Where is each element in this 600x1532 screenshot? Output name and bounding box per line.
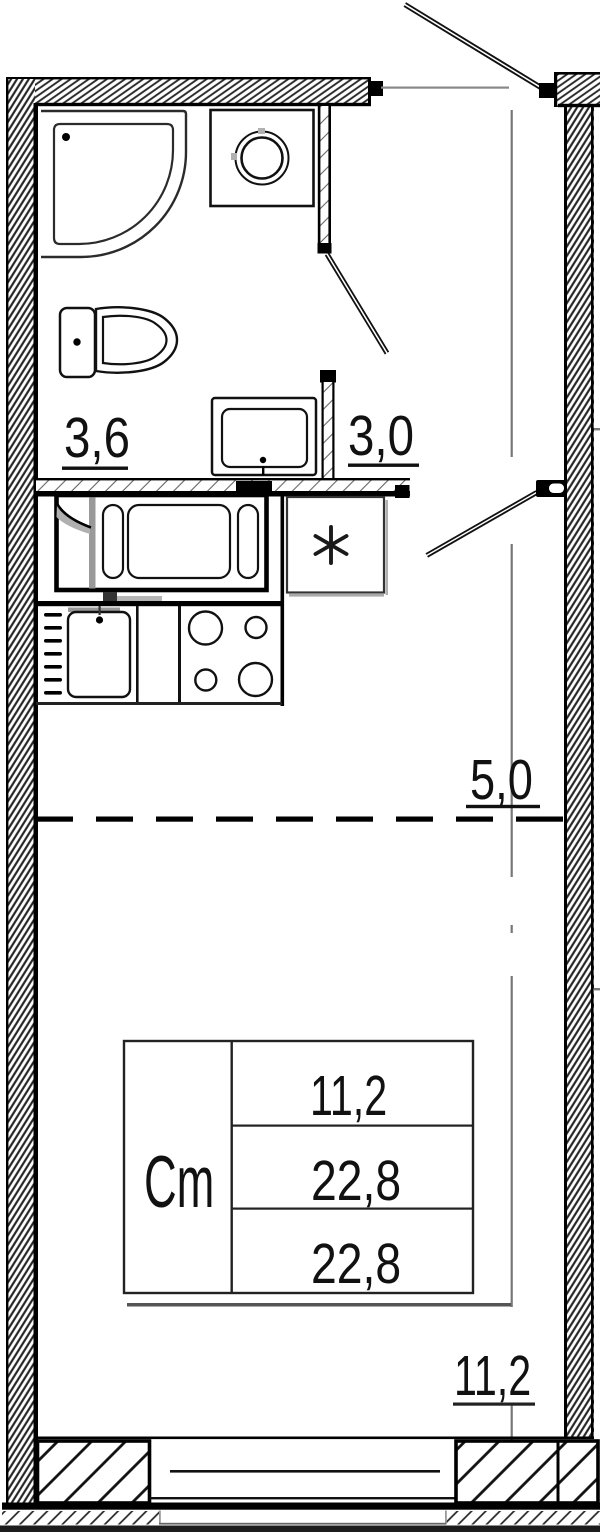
svg-text:11,2: 11,2	[310, 1065, 387, 1128]
svg-text:5,0: 5,0	[470, 748, 533, 811]
svg-text:Cm: Cm	[144, 1141, 214, 1223]
svg-text:22,8: 22,8	[311, 1232, 401, 1295]
svg-text:3,6: 3,6	[64, 407, 130, 470]
svg-text:11,2: 11,2	[454, 1345, 531, 1408]
svg-text:22,8: 22,8	[311, 1149, 401, 1212]
svg-text:3,0: 3,0	[348, 405, 414, 468]
